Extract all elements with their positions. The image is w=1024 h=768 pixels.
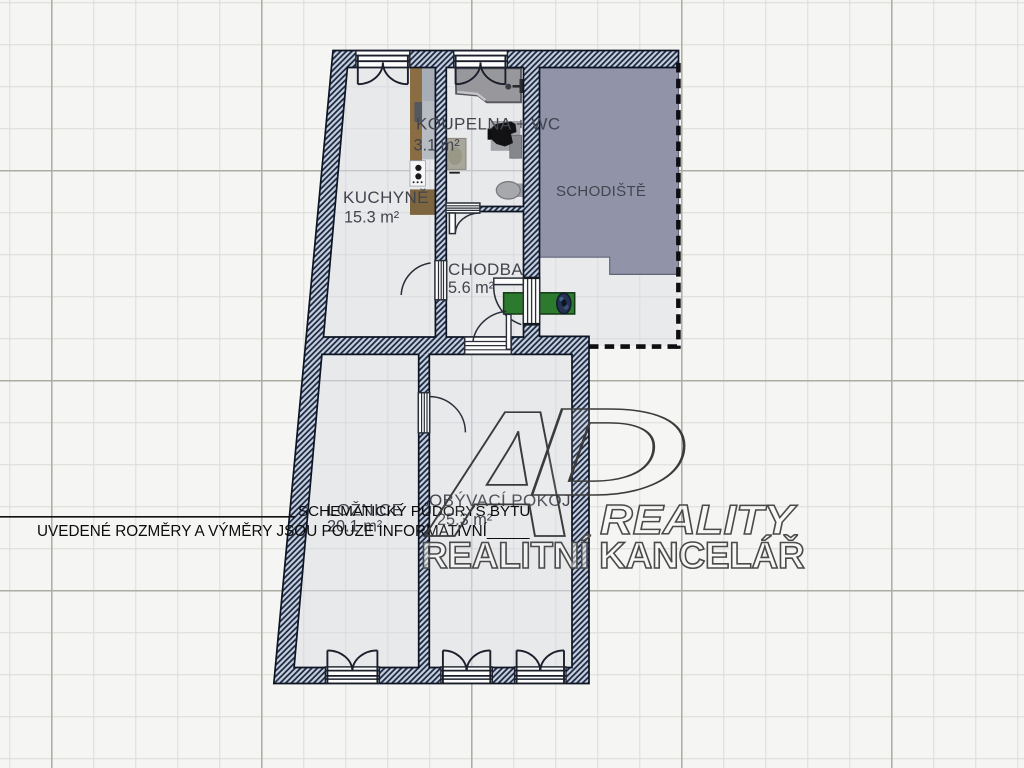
svg-text:KOUPELNA + WC: KOUPELNA + WC xyxy=(416,115,561,134)
svg-text:15.3 m²: 15.3 m² xyxy=(344,209,400,227)
svg-text:REALITNÍ KANCELÁŘ: REALITNÍ KANCELÁŘ xyxy=(421,534,804,576)
svg-text:3.1 m²: 3.1 m² xyxy=(414,137,461,155)
svg-text:CHODBA: CHODBA xyxy=(448,260,523,279)
svg-text:KUCHYNĚ: KUCHYNĚ xyxy=(343,188,429,207)
svg-text:SCHODIŠTĚ: SCHODIŠTĚ xyxy=(556,183,646,200)
svg-text:5.6 m²: 5.6 m² xyxy=(448,279,495,297)
